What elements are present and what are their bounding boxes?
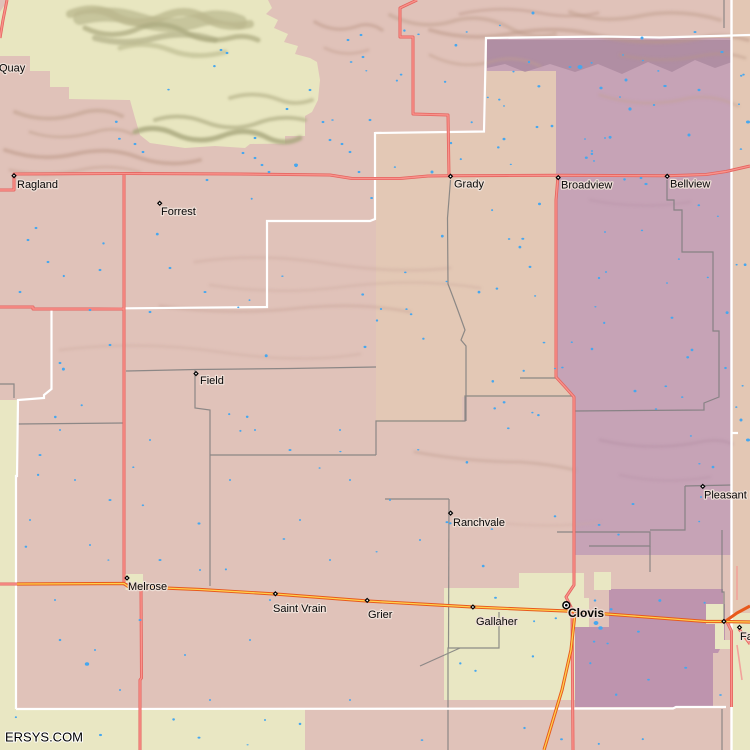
svg-text:Ranchvale: Ranchvale <box>453 517 505 529</box>
svg-text:Farwell: Farwell <box>740 631 750 643</box>
svg-text:Melrose: Melrose <box>128 581 167 593</box>
svg-text:Pleasant Hill: Pleasant Hill <box>704 490 750 502</box>
svg-text:Ragland: Ragland <box>17 179 58 191</box>
svg-text:Forrest: Forrest <box>161 206 196 218</box>
svg-text:Quay: Quay <box>0 63 26 75</box>
svg-text:Bellview: Bellview <box>670 179 710 191</box>
svg-text:Grady: Grady <box>454 179 484 191</box>
svg-text:Broadview: Broadview <box>561 180 612 192</box>
svg-text:ERSYS.COM: ERSYS.COM <box>5 730 83 745</box>
svg-text:Field: Field <box>200 375 224 387</box>
svg-text:Grier: Grier <box>368 609 393 621</box>
svg-text:Clovis: Clovis <box>568 606 604 620</box>
svg-text:Saint Vrain: Saint Vrain <box>273 603 326 615</box>
svg-text:Gallaher: Gallaher <box>476 616 518 628</box>
